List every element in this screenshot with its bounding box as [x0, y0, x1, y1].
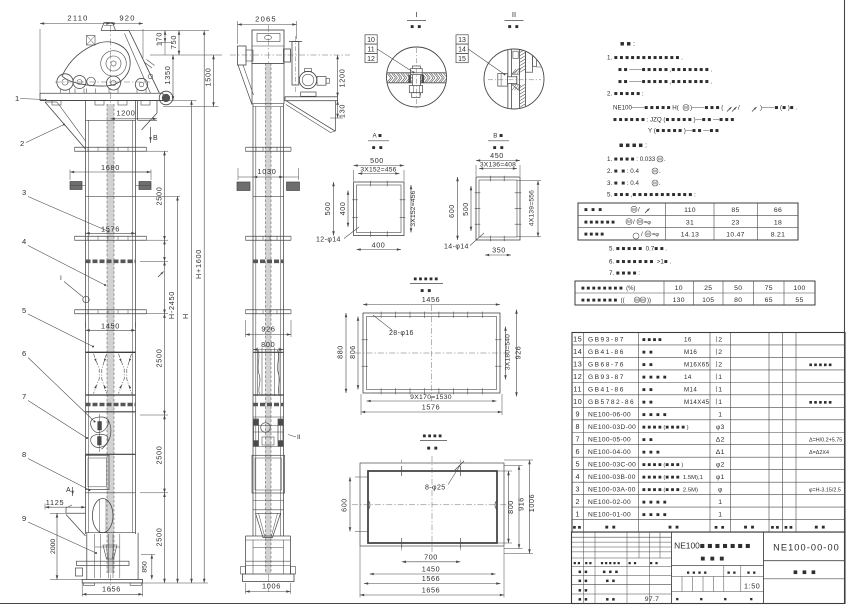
svg-text:Δ=Δ2X4: Δ=Δ2X4 [809, 450, 829, 456]
svg-text:■: ■ [676, 598, 680, 603]
svg-text:350: 350 [492, 245, 506, 254]
svg-text:2. ■■■■■:: 2. ■■■■■: [607, 91, 644, 98]
svg-text:9: 9 [575, 410, 580, 419]
svg-text:M: M [641, 297, 645, 302]
svg-text:■ ■: ■ ■ [727, 571, 737, 576]
svg-text:M: M [632, 207, 636, 212]
svg-text:■ ■: ■ ■ [814, 525, 826, 531]
svg-text:4: 4 [575, 472, 580, 481]
svg-text:)——■(■)■.: )——■(■)■. [760, 105, 797, 112]
svg-text:φ3: φ3 [716, 424, 725, 431]
svg-text:NE100-00-00: NE100-00-00 [773, 543, 840, 553]
svg-text:NE100——■■■■■H(: NE100——■■■■■H( [613, 105, 680, 112]
svg-text:■■■■■: ■■■■■ [809, 363, 833, 369]
svg-text:1:50: 1:50 [744, 582, 760, 591]
svg-text:■ ■: ■ ■ [628, 560, 638, 565]
svg-text:5: 5 [22, 306, 26, 315]
svg-text:■: ■ [700, 598, 704, 603]
svg-text:M: M [653, 181, 657, 186]
svg-text:■ ■: ■ ■ [650, 560, 660, 565]
svg-text:M: M [627, 219, 631, 224]
svg-text:2: 2 [718, 349, 722, 356]
svg-text:2000: 2000 [50, 539, 57, 554]
svg-text:M: M [684, 105, 688, 110]
svg-text:1030: 1030 [257, 167, 276, 176]
svg-text:130: 130 [338, 104, 347, 118]
svg-text:850: 850 [142, 561, 149, 573]
svg-text:6: 6 [575, 447, 580, 456]
svg-text:GB41-86: GB41-86 [588, 387, 625, 394]
svg-text:■ ■: ■ ■ [372, 146, 385, 152]
svg-text:M14: M14 [684, 387, 697, 394]
svg-text:■ ■: ■ ■ [642, 388, 654, 394]
svg-text:■■——■■■■■,■■■■■■■.: ■■——■■■■■,■■■■■■■. [618, 79, 713, 86]
svg-text:10: 10 [675, 285, 683, 292]
svg-text:B: B [153, 135, 158, 142]
svg-text:■■■■(■■■■): ■■■■(■■■■) [642, 425, 689, 431]
svg-text:130: 130 [673, 297, 685, 304]
svg-text:1. ■■■■■■■■■■■■.: 1. ■■■■■■■■■■■■. [607, 55, 683, 62]
svg-text:12: 12 [367, 56, 375, 63]
svg-text:/: / [638, 207, 640, 214]
svg-text:1656: 1656 [102, 584, 121, 593]
svg-text:1: 1 [15, 94, 19, 103]
svg-text:800: 800 [261, 340, 275, 349]
svg-text:920: 920 [119, 14, 135, 23]
svg-text:NE100-03D-00: NE100-03D-00 [588, 424, 636, 431]
svg-text:=φ: =φ [652, 232, 659, 238]
svg-text:Δ=H/0.2+5.75: Δ=H/0.2+5.75 [809, 437, 842, 443]
svg-text:4: 4 [22, 237, 26, 246]
svg-text:Δ2: Δ2 [716, 436, 725, 443]
svg-text:400: 400 [372, 240, 386, 249]
svg-text:A ■: A ■ [372, 133, 383, 140]
svg-text:2500: 2500 [155, 348, 164, 367]
svg-text:6: 6 [22, 349, 26, 358]
svg-text:NE100-01-00: NE100-01-00 [588, 511, 631, 518]
svg-text:1: 1 [718, 374, 722, 381]
svg-text:■ ■ ■: ■ ■ ■ [642, 450, 661, 456]
svg-text:10: 10 [367, 37, 375, 44]
svg-text:■ ■ ■ ■: ■ ■ ■ ■ [687, 571, 708, 576]
svg-text:■ ■: ■ ■ [642, 363, 654, 369]
svg-text:1: 1 [718, 387, 722, 394]
svg-text:■ ■: ■ ■ [606, 597, 617, 603]
svg-text:M: M [658, 157, 662, 162]
svg-text:14: 14 [573, 347, 582, 356]
svg-text:3: 3 [575, 484, 580, 493]
svg-text:15: 15 [458, 56, 466, 63]
svg-text:■ ■ ■: ■ ■ ■ [700, 554, 726, 563]
svg-text:1: 1 [718, 511, 722, 518]
svg-text:■ ■: ■ ■ [744, 525, 756, 531]
svg-text:55: 55 [795, 297, 803, 304]
svg-text:13: 13 [573, 360, 582, 369]
svg-text:3X180=540: 3X180=540 [505, 334, 512, 370]
svg-text:1576: 1576 [101, 225, 120, 234]
svg-text:14.13: 14.13 [681, 232, 700, 239]
svg-text:I: I [60, 275, 62, 282]
svg-text:φ: φ [718, 486, 723, 493]
svg-text:75: 75 [765, 285, 773, 292]
svg-text:M: M [638, 219, 642, 224]
svg-text:1500: 1500 [204, 67, 213, 86]
svg-text:A: A [66, 487, 71, 494]
svg-text:Δ1: Δ1 [716, 449, 725, 456]
svg-text:3X136=408: 3X136=408 [480, 162, 516, 169]
svg-text:■ ■: ■ ■ [642, 400, 654, 406]
svg-text:■■: ■■ [573, 560, 581, 565]
svg-text:■ ■ ■: ■ ■ ■ [602, 569, 619, 575]
svg-text:■■:: ■■: [620, 39, 635, 48]
svg-text:2: 2 [718, 337, 722, 344]
svg-text:2: 2 [20, 139, 24, 148]
svg-text:■ ■: ■ ■ [578, 579, 589, 585]
svg-text:NE100-05-00: NE100-05-00 [588, 436, 631, 443]
svg-text:6. ■■■■■■■ >1■.: 6. ■■■■■■■ >1■. [609, 259, 671, 266]
svg-text:8-φ25: 8-φ25 [425, 485, 446, 492]
svg-text:880: 880 [336, 345, 345, 359]
svg-text:Y (■■■■■)—■■—■■: Y (■■■■■)—■■—■■ [648, 128, 721, 135]
svg-text:1: 1 [575, 509, 580, 518]
svg-text:NE100-03B-00: NE100-03B-00 [588, 474, 636, 481]
svg-text:14-φ14: 14-φ14 [444, 244, 469, 251]
svg-text:■■: ■■ [771, 525, 781, 531]
svg-text:11: 11 [573, 385, 582, 394]
svg-text:9: 9 [22, 514, 26, 523]
svg-text:■ ■: ■ ■ [427, 446, 440, 452]
svg-text:14: 14 [458, 47, 466, 54]
svg-text:■■■■: ■■■■ [642, 338, 663, 344]
svg-text:φ1: φ1 [716, 474, 725, 481]
svg-text:500: 500 [323, 202, 332, 216]
svg-text:M16X65: M16X65 [684, 362, 710, 369]
svg-text:NE100-03C-00: NE100-03C-00 [588, 461, 636, 468]
svg-text:500: 500 [461, 202, 470, 216]
svg-text:■ ■: ■ ■ [606, 579, 617, 585]
svg-text:7: 7 [575, 434, 580, 443]
svg-text:NE100-06-00: NE100-06-00 [588, 412, 631, 419]
svg-text:H-2450: H-2450 [167, 291, 176, 319]
svg-text:■ ■: ■ ■ [578, 597, 589, 603]
svg-text:1450: 1450 [101, 321, 120, 330]
svg-text:)——■■■(: )——■■■( [690, 105, 724, 112]
svg-text:5. ■■■■■ 0.7■■.: 5. ■■■■■ 0.7■■. [609, 246, 667, 253]
svg-text:926: 926 [261, 325, 275, 334]
svg-text:12: 12 [573, 372, 582, 381]
svg-text:926: 926 [514, 346, 523, 360]
svg-text:■■——■■■■■,■■■■■■■.: ■■——■■■■■,■■■■■■■. [618, 67, 713, 74]
svg-text:■■■■(■■■ 2.5M): ■■■■(■■■ 2.5M) [642, 487, 698, 493]
svg-text:NE100-03A-00: NE100-03A-00 [588, 486, 636, 493]
svg-text:.: . [659, 180, 661, 187]
svg-text:1: 1 [718, 412, 722, 419]
svg-text:500: 500 [370, 156, 384, 165]
svg-text:85: 85 [731, 207, 739, 214]
svg-text:■■: ■■ [784, 525, 794, 531]
svg-text:1006: 1006 [527, 494, 536, 512]
svg-text:.: . [664, 156, 666, 163]
svg-text:12-φ14: 12-φ14 [316, 237, 341, 244]
svg-text:■ ■: ■ ■ [668, 525, 680, 531]
svg-text:■■■■■■: ■■■■■■ [584, 220, 617, 226]
svg-text:3. ■ ■: 0.4: 3. ■ ■: 0.4 [607, 180, 639, 187]
svg-text:■■: ■■ [585, 560, 593, 565]
svg-text:■■■■■■: JZQ (■■■■■)—■■—■■■: ■■■■■■: JZQ (■■■■■)—■■—■■■ [613, 117, 736, 124]
svg-text:■ ■ ■ ■: ■ ■ ■ ■ [642, 512, 668, 518]
svg-text:■ ■ ■: ■ ■ ■ [793, 568, 818, 577]
svg-text:■ ■: ■ ■ [714, 525, 726, 531]
svg-text:H: H [181, 313, 190, 319]
svg-text:3X152=456: 3X152=456 [360, 167, 396, 174]
svg-text:■■■■■■■ ((: ■■■■■■■ (( [581, 298, 625, 304]
svg-text:φ=H-3.15/2.5: φ=H-3.15/2.5 [809, 487, 841, 493]
svg-text:■■■■:: ■■■■: [619, 141, 647, 150]
svg-text:■ ■: ■ ■ [642, 350, 654, 356]
svg-text:B ■: B ■ [493, 133, 504, 140]
svg-text:GB68-76: GB68-76 [588, 362, 625, 369]
svg-text:31: 31 [686, 219, 694, 226]
svg-text:■■■■(■■■ 1.5M),1: ■■■■(■■■ 1.5M),1 [642, 475, 703, 481]
svg-text:GB93-87: GB93-87 [588, 337, 625, 344]
svg-text:8: 8 [22, 450, 26, 459]
svg-text:GB5782-86: GB5782-86 [588, 399, 635, 406]
svg-text:M: M [635, 297, 639, 302]
svg-text:700: 700 [424, 552, 438, 561]
svg-text:7: 7 [22, 392, 26, 401]
svg-text:916: 916 [516, 497, 525, 511]
svg-text:80: 80 [734, 297, 742, 304]
svg-text:7. ■■■■:: 7. ■■■■: [609, 270, 640, 277]
svg-text:1: 1 [718, 499, 722, 506]
svg-text:■ ■: ■ ■ [410, 25, 423, 31]
svg-text:110: 110 [684, 207, 696, 214]
svg-text:2: 2 [718, 362, 722, 369]
svg-text:NE100-02-00: NE100-02-00 [588, 499, 631, 506]
svg-text:)): )) [647, 298, 651, 304]
svg-text:750: 750 [169, 35, 178, 49]
svg-text:■■: ■■ [573, 525, 583, 531]
svg-text:.: . [659, 168, 661, 175]
svg-text:105: 105 [702, 297, 714, 304]
svg-text:600: 600 [447, 204, 456, 218]
svg-text:18: 18 [774, 219, 782, 226]
svg-text:400: 400 [338, 202, 347, 216]
svg-text:66: 66 [774, 207, 782, 214]
svg-text:/: / [641, 231, 643, 238]
svg-text:1450: 1450 [422, 565, 440, 574]
svg-text:800: 800 [506, 500, 515, 514]
svg-text:M14X45: M14X45 [684, 399, 710, 406]
svg-text:1200: 1200 [338, 68, 347, 87]
svg-text:28-φ16: 28-φ16 [389, 330, 414, 337]
svg-text:GB41-86: GB41-86 [588, 349, 625, 356]
svg-text:1125: 1125 [46, 498, 65, 507]
svg-text:600: 600 [340, 498, 349, 512]
svg-text:1680: 1680 [101, 163, 120, 172]
svg-text:97.7: 97.7 [645, 596, 659, 603]
svg-text:8: 8 [575, 422, 580, 431]
svg-text:■ ■: ■ ■ [420, 289, 433, 295]
svg-text:I: I [415, 10, 417, 19]
svg-text:M16: M16 [684, 349, 697, 356]
svg-text:■ ■ ■ ■: ■ ■ ■ ■ [642, 500, 668, 506]
svg-text:15: 15 [573, 335, 582, 344]
svg-text:1: 1 [718, 399, 722, 406]
svg-text:/: / [633, 219, 635, 226]
svg-text:4X139=556: 4X139=556 [529, 190, 536, 226]
svg-text:1656: 1656 [422, 586, 440, 595]
svg-text:M: M [646, 232, 650, 237]
svg-text:II: II [297, 434, 301, 441]
svg-text:13: 13 [458, 37, 466, 44]
svg-text:/: / [738, 105, 740, 112]
svg-text:2110: 2110 [67, 14, 88, 23]
svg-text:■: ■ [750, 598, 754, 603]
svg-text:11: 11 [367, 47, 374, 54]
svg-text:2. ■ ■: 0.4: 2. ■ ■: 0.4 [607, 168, 639, 175]
svg-text:65: 65 [765, 297, 773, 304]
svg-text:2065: 2065 [255, 15, 277, 24]
svg-text:■ ■: ■ ■ [578, 569, 589, 575]
svg-text:170: 170 [155, 32, 164, 46]
svg-text:2500: 2500 [155, 527, 164, 546]
svg-text:3: 3 [22, 188, 26, 197]
svg-text:23: 23 [731, 219, 739, 226]
svg-text:■ ■ ■ ■: ■ ■ ■ ■ [642, 413, 668, 419]
svg-text:■: ■ [724, 598, 728, 603]
svg-text:25: 25 [704, 285, 712, 292]
svg-text:■ ■ ■: ■ ■ ■ [584, 208, 604, 214]
svg-text:50: 50 [734, 285, 742, 292]
svg-text:■ ■ ■ ■: ■ ■ ■ ■ [642, 375, 668, 381]
svg-text:10: 10 [573, 397, 582, 406]
svg-text:1200: 1200 [116, 109, 135, 118]
svg-text:16: 16 [684, 337, 692, 344]
svg-text:■ ■: ■ ■ [508, 25, 521, 31]
svg-text:M: M [653, 169, 657, 174]
svg-text:H+1600: H+1600 [194, 249, 203, 279]
svg-text:■■■■■: ■■■■■ [413, 277, 439, 283]
svg-text:8.21: 8.21 [771, 232, 785, 239]
svg-text:1576: 1576 [422, 403, 440, 412]
svg-text:GB93-87: GB93-87 [588, 374, 625, 381]
svg-text:2: 2 [575, 497, 580, 506]
svg-text:■■■■: ■■■■ [584, 232, 606, 238]
svg-text:1006: 1006 [262, 582, 281, 591]
svg-text:II: II [512, 10, 516, 19]
svg-text:■ ■: ■ ■ [578, 588, 589, 594]
svg-text:5: 5 [575, 459, 580, 468]
svg-text:■ ■: ■ ■ [605, 525, 617, 531]
svg-text:5. ■■■,■■■■■■■■■■■:: 5. ■■■,■■■■■■■■■■■: [607, 192, 696, 199]
svg-text:100: 100 [793, 285, 805, 292]
svg-text:10.47: 10.47 [726, 232, 745, 239]
svg-text:2500: 2500 [155, 186, 164, 205]
svg-text:■■■■■: ■■■■■ [809, 400, 833, 406]
svg-text:φ2: φ2 [716, 461, 725, 468]
svg-text:■ ■: ■ ■ [747, 571, 757, 576]
svg-text:2500: 2500 [155, 445, 164, 464]
svg-text:1350: 1350 [163, 65, 172, 84]
svg-text:3X152=456: 3X152=456 [410, 190, 417, 226]
svg-text:1456: 1456 [422, 295, 440, 304]
svg-text:450: 450 [490, 151, 504, 160]
svg-text:1. ■■■■: 0.033: 1. ■■■■: 0.033 [607, 156, 656, 163]
svg-text:NE100-04-00: NE100-04-00 [588, 449, 631, 456]
svg-text:806: 806 [348, 345, 357, 359]
svg-text:■ ■: ■ ■ [642, 437, 654, 443]
svg-text:9X170=1530: 9X170=1530 [410, 394, 452, 401]
svg-text:=φ: =φ [644, 220, 651, 226]
svg-text:■■■■■■■■ (%): ■■■■■■■■ (%) [581, 286, 635, 292]
svg-text:14: 14 [684, 374, 692, 381]
svg-text:■■■■: ■■■■ [423, 434, 444, 440]
svg-text:1566: 1566 [422, 574, 440, 583]
svg-text:■■■■■: ■■■■■ [601, 560, 622, 565]
svg-text:NE100■■■■■■■: NE100■■■■■■■ [674, 541, 753, 551]
svg-text:■■■■(■■■): ■■■■(■■■) [642, 462, 683, 468]
